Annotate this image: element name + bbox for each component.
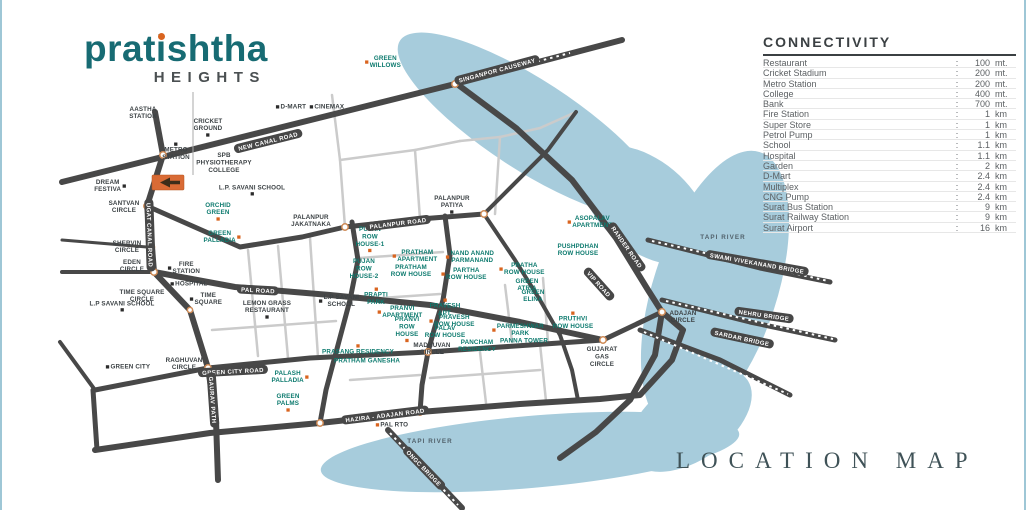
connectivity-distance: 200 [962, 68, 990, 78]
connectivity-panel: CONNECTIVITY Restaurant:100mt.Cricket St… [763, 34, 1016, 233]
connectivity-place: Surat Airport [763, 223, 952, 233]
connectivity-separator: : [952, 130, 962, 140]
connectivity-separator: : [952, 192, 962, 202]
connectivity-separator: : [952, 99, 962, 109]
connectivity-unit: km [990, 130, 1016, 140]
connectivity-distance: 2.4 [962, 192, 990, 202]
connectivity-row: Multiplex:2.4km [763, 182, 1016, 192]
brand-name-part: shtha [167, 28, 268, 69]
connectivity-separator: : [952, 161, 962, 171]
connectivity-distance: 1.1 [962, 151, 990, 161]
connectivity-distance: 2.4 [962, 171, 990, 181]
connectivity-unit: km [990, 202, 1016, 212]
location-map-page: AASTHA STATIONGREEN WILLOWSD-MARTCINEMAX… [0, 0, 1026, 510]
connectivity-distance: 200 [962, 79, 990, 89]
connectivity-row: College:400mt. [763, 89, 1016, 99]
connectivity-row: Super Store:1km [763, 120, 1016, 130]
connectivity-distance: 9 [962, 202, 990, 212]
connectivity-place: Super Store [763, 120, 952, 130]
connectivity-separator: : [952, 151, 962, 161]
connectivity-distance: 1.1 [962, 140, 990, 150]
brand-name-part: prat [84, 28, 156, 69]
connectivity-row: Restaurant:100mt. [763, 58, 1016, 68]
connectivity-place: Restaurant [763, 58, 952, 68]
connectivity-unit: mt. [990, 68, 1016, 78]
connectivity-separator: : [952, 68, 962, 78]
connectivity-unit: km [990, 182, 1016, 192]
connectivity-distance: 16 [962, 223, 990, 233]
connectivity-separator: : [952, 140, 962, 150]
connectivity-title: CONNECTIVITY [763, 34, 1016, 56]
connectivity-unit: mt. [990, 99, 1016, 109]
connectivity-distance: 1 [962, 109, 990, 119]
brand-logo: pratishtha HEIGHTS [84, 30, 268, 85]
brand-i-dot-icon [158, 33, 165, 40]
connectivity-separator: : [952, 79, 962, 89]
connectivity-row: Hospital:1.1km [763, 151, 1016, 161]
connectivity-separator: : [952, 89, 962, 99]
connectivity-separator: : [952, 212, 962, 222]
connectivity-place: College [763, 89, 952, 99]
connectivity-row: Surat Railway Station:9km [763, 212, 1016, 222]
connectivity-distance: 700 [962, 99, 990, 109]
connectivity-unit: km [990, 109, 1016, 119]
connectivity-separator: : [952, 223, 962, 233]
connectivity-distance: 1 [962, 120, 990, 130]
connectivity-distance: 2.4 [962, 182, 990, 192]
connectivity-place: Bank [763, 99, 952, 109]
brand-tagline: HEIGHTS [84, 70, 268, 85]
connectivity-row: CNG Pump:2.4km [763, 192, 1016, 202]
connectivity-place: Surat Bus Station [763, 202, 952, 212]
connectivity-place: Multiplex [763, 182, 952, 192]
connectivity-place: Surat Railway Station [763, 212, 952, 222]
brand-name-i: i [156, 30, 167, 67]
connectivity-unit: km [990, 171, 1016, 181]
connectivity-place: Petrol Pump [763, 130, 952, 140]
connectivity-place: School [763, 140, 952, 150]
connectivity-unit: km [990, 212, 1016, 222]
connectivity-place: CNG Pump [763, 192, 952, 202]
connectivity-unit: mt. [990, 58, 1016, 68]
connectivity-distance: 400 [962, 89, 990, 99]
connectivity-row: Garden:2km [763, 161, 1016, 171]
connectivity-row: School:1.1km [763, 140, 1016, 150]
connectivity-unit: km [990, 161, 1016, 171]
connectivity-distance: 1 [962, 130, 990, 140]
connectivity-distance: 2 [962, 161, 990, 171]
connectivity-place: Hospital [763, 151, 952, 161]
connectivity-row: D-Mart:2.4km [763, 171, 1016, 181]
connectivity-place: Fire Station [763, 109, 952, 119]
connectivity-separator: : [952, 202, 962, 212]
connectivity-row: Fire Station:1km [763, 109, 1016, 119]
connectivity-rows: Restaurant:100mt.Cricket Stadium:200mt.M… [763, 58, 1016, 233]
brand-name: pratishtha [84, 30, 268, 67]
connectivity-place: Cricket Stadium [763, 68, 952, 78]
connectivity-row: Bank:700mt. [763, 99, 1016, 109]
connectivity-unit: km [990, 192, 1016, 202]
connectivity-unit: mt. [990, 89, 1016, 99]
connectivity-separator: : [952, 171, 962, 181]
connectivity-unit: km [990, 120, 1016, 130]
connectivity-place: Garden [763, 161, 952, 171]
connectivity-place: Metro Station [763, 79, 952, 89]
connectivity-separator: : [952, 109, 962, 119]
connectivity-separator: : [952, 182, 962, 192]
connectivity-place: D-Mart [763, 171, 952, 181]
connectivity-unit: km [990, 223, 1016, 233]
connectivity-distance: 9 [962, 212, 990, 222]
connectivity-separator: : [952, 120, 962, 130]
location-map-title: LOCATION MAP [676, 448, 979, 474]
connectivity-row: Surat Bus Station:9km [763, 202, 1016, 212]
connectivity-row: Metro Station:200mt. [763, 79, 1016, 89]
connectivity-row: Cricket Stadium:200mt. [763, 68, 1016, 78]
connectivity-unit: mt. [990, 79, 1016, 89]
connectivity-row: Petrol Pump:1km [763, 130, 1016, 140]
connectivity-row: Surat Airport:16km [763, 223, 1016, 233]
connectivity-unit: km [990, 140, 1016, 150]
connectivity-distance: 100 [962, 58, 990, 68]
connectivity-separator: : [952, 58, 962, 68]
connectivity-unit: km [990, 151, 1016, 161]
